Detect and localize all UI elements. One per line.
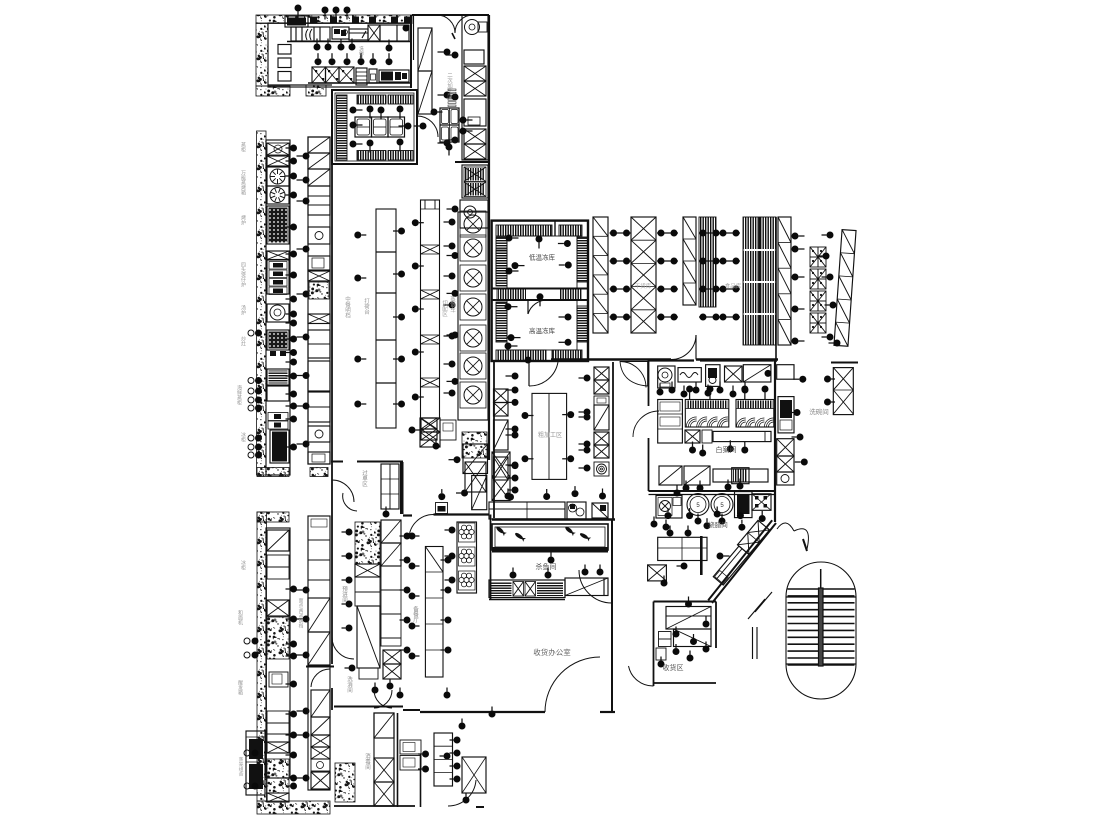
svg-text:备餐厅: 备餐厅 bbox=[412, 605, 419, 623]
svg-text:和面机: 和面机 bbox=[237, 609, 243, 626]
svg-text:醒发箱: 醒发箱 bbox=[237, 680, 243, 696]
svg-text:收货区: 收货区 bbox=[663, 663, 684, 672]
svg-text:炒灶: 炒灶 bbox=[240, 336, 246, 347]
svg-text:粗加工区: 粗加工区 bbox=[538, 431, 562, 439]
svg-text:杀鱼间: 杀鱼间 bbox=[536, 562, 557, 571]
svg-text:预进间: 预进间 bbox=[341, 585, 348, 604]
svg-text:白案间: 白案间 bbox=[716, 445, 737, 454]
svg-text:消毒间: 消毒间 bbox=[364, 752, 371, 771]
svg-text:汤炉: 汤炉 bbox=[240, 304, 246, 316]
svg-text:收货办公室: 收货办公室 bbox=[533, 647, 571, 657]
svg-text:洗消间: 洗消间 bbox=[346, 675, 353, 694]
svg-text:二次加工区: 二次加工区 bbox=[446, 72, 453, 100]
svg-text:低温冻库: 低温冻库 bbox=[529, 253, 556, 262]
svg-text:高温冻库: 高温冻库 bbox=[529, 326, 556, 335]
svg-text:烧腊间: 烧腊间 bbox=[708, 520, 728, 529]
svg-text:蒸笼组合: 蒸笼组合 bbox=[238, 756, 243, 777]
svg-text:蒸柜: 蒸柜 bbox=[240, 141, 246, 153]
svg-text:干货库: 干货库 bbox=[635, 282, 652, 290]
svg-text:万能蒸烤箱: 万能蒸烤箱 bbox=[240, 170, 246, 196]
svg-text:海鲜蒸柜: 海鲜蒸柜 bbox=[236, 384, 242, 406]
svg-text:打荷台: 打荷台 bbox=[363, 297, 370, 316]
svg-text:蒸饭车: 蒸饭车 bbox=[449, 295, 456, 314]
svg-text:中餐明档: 中餐明档 bbox=[344, 295, 351, 320]
svg-text:食品库: 食品库 bbox=[725, 282, 742, 290]
svg-text:冰柜: 冰柜 bbox=[240, 431, 246, 443]
svg-text:烤炉: 烤炉 bbox=[240, 214, 246, 226]
svg-text:洗碗间: 洗碗间 bbox=[809, 407, 829, 416]
svg-text:四头煲仔炉: 四头煲仔炉 bbox=[240, 262, 246, 288]
svg-text:过单区: 过单区 bbox=[361, 469, 368, 487]
svg-text:切配区: 切配区 bbox=[441, 300, 448, 317]
svg-text:冰柜: 冰柜 bbox=[240, 559, 246, 571]
